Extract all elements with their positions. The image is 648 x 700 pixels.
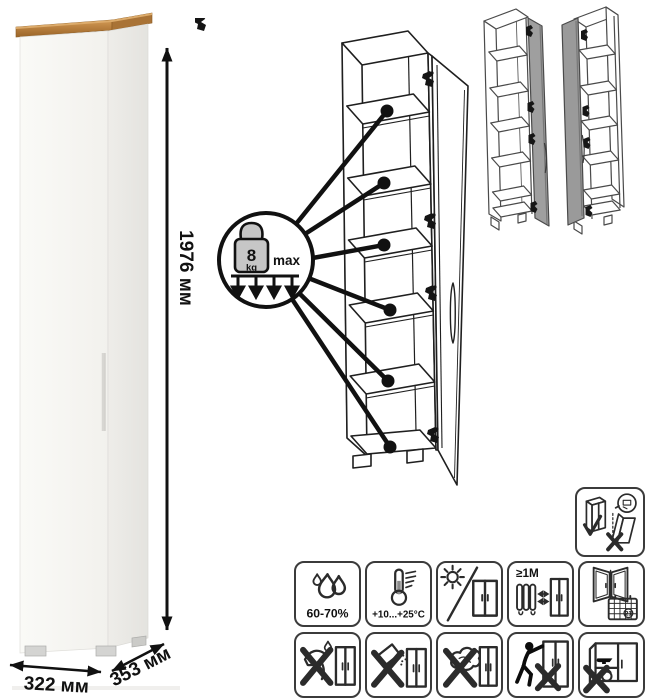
door-variants	[478, 5, 648, 240]
no-pushing-icon	[507, 632, 574, 698]
distance-label: ≥1M	[516, 567, 539, 580]
distance-arrows	[539, 592, 548, 604]
product-sheet: 1976 мм 322 мм 353 мм	[0, 0, 648, 700]
door-handle	[450, 283, 455, 343]
wardrobe-glyph	[480, 647, 497, 686]
width-arrow	[10, 665, 101, 672]
callout-dots	[378, 105, 397, 454]
variant-door-gray	[562, 18, 584, 225]
shelf-load-badge: 8 kg max	[219, 213, 313, 307]
open-door	[432, 56, 468, 485]
wardrobe-glyph	[336, 647, 355, 685]
width-label: 322 мм	[23, 673, 89, 697]
calendar-glyph: 21	[609, 596, 637, 619]
cabinet-front	[20, 31, 108, 653]
anti-tip-upright-icon	[575, 487, 645, 557]
humidity-icon: 60-70%	[294, 561, 361, 627]
wardrobe-glyph	[407, 649, 426, 687]
product-photo: 1976 мм 322 мм 353 мм	[0, 0, 200, 700]
radiator-glyph	[517, 585, 535, 615]
door-left-variant	[562, 7, 624, 234]
temperature-icon: +10...+25°C	[365, 561, 432, 627]
wardrobe-glyph	[473, 581, 496, 616]
door-right-variant	[484, 9, 549, 230]
x-mark	[303, 650, 330, 683]
depth-label: 353 мм	[107, 643, 175, 691]
no-overload-icon	[578, 632, 645, 698]
load-unit: kg	[246, 263, 257, 274]
no-wet-cleaning-icon	[436, 632, 503, 698]
x-mark	[374, 653, 401, 685]
no-abrasives-icon	[365, 632, 432, 698]
load-max-label: max	[273, 253, 301, 268]
no-solvents-icon	[294, 632, 361, 698]
ventilation-icon: 21	[578, 561, 645, 627]
anvil-glyph	[597, 658, 613, 664]
no-direct-sunlight-icon	[436, 561, 503, 627]
shelf-load-drawing: 8 kg max	[195, 18, 487, 516]
cabinet-handle-groove	[103, 353, 105, 431]
open-window-glyph	[594, 568, 628, 602]
temperature-label: +10...+25°C	[372, 609, 425, 620]
calendar-day: 21	[625, 611, 632, 618]
cabinet-side	[108, 24, 148, 648]
heat-distance-icon: ≥1M	[507, 561, 574, 627]
humidity-label: 60-70%	[306, 606, 348, 620]
height-label: 1976 мм	[175, 230, 196, 306]
sun-glyph	[441, 566, 464, 589]
wardrobe-glyph	[551, 579, 568, 616]
